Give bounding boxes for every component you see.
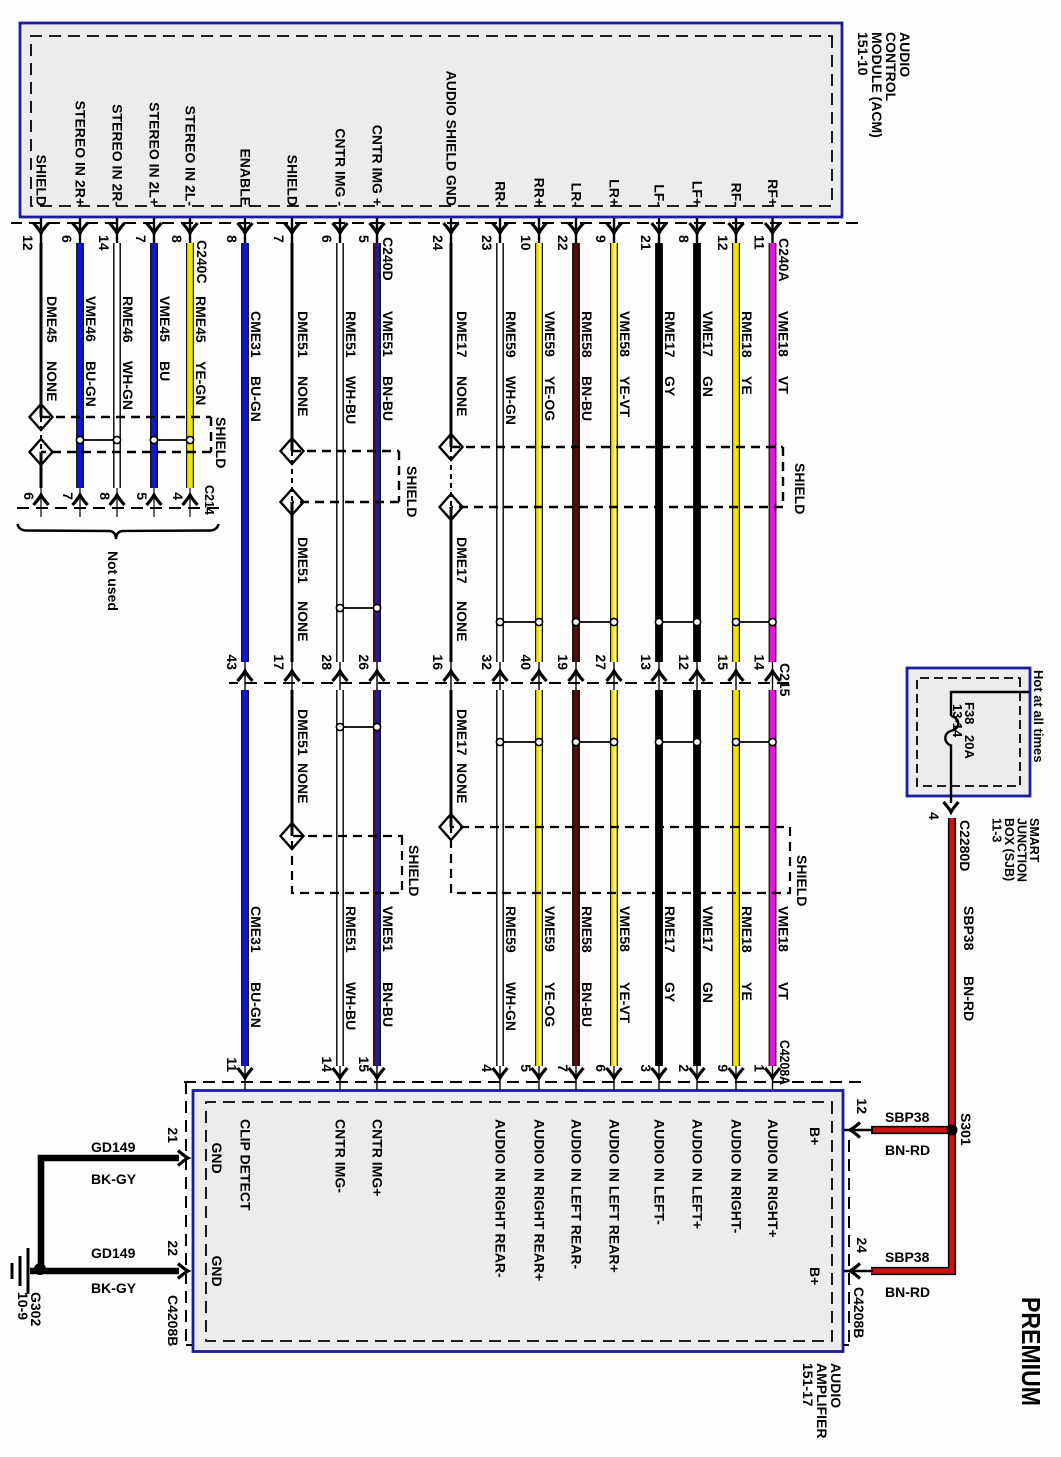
svg-text:B+: B+ (807, 1267, 823, 1285)
svg-text:C240D: C240D (380, 237, 396, 281)
svg-text:VME58: VME58 (617, 311, 633, 357)
svg-text:22: 22 (555, 235, 571, 251)
svg-text:LR+: LR+ (607, 179, 623, 206)
svg-text:1: 1 (752, 1064, 768, 1072)
svg-text:9: 9 (593, 235, 609, 243)
svg-text:SHIELD: SHIELD (34, 155, 50, 206)
svg-text:WH-BU: WH-BU (343, 376, 359, 424)
svg-text:8: 8 (224, 235, 240, 243)
svg-text:19: 19 (555, 654, 571, 670)
svg-text:RME58: RME58 (579, 906, 595, 953)
svg-text:RME46: RME46 (120, 296, 136, 343)
svg-text:BK-GY: BK-GY (91, 1171, 137, 1187)
svg-text:8: 8 (97, 492, 113, 500)
svg-text:C4208A: C4208A (777, 1040, 793, 1085)
svg-text:4: 4 (479, 1064, 495, 1072)
svg-text:STEREO IN 2L+: STEREO IN 2L+ (147, 102, 163, 206)
svg-text:YE-VT: YE-VT (617, 376, 633, 418)
svg-text:7: 7 (555, 1064, 571, 1072)
svg-text:B+: B+ (807, 1127, 823, 1145)
svg-text:STEREO IN 2L-: STEREO IN 2L- (183, 106, 199, 207)
svg-text:DME17: DME17 (454, 537, 470, 584)
svg-text:SBP38: SBP38 (961, 906, 977, 951)
svg-text:12: 12 (20, 235, 36, 251)
svg-text:RF-: RF- (729, 183, 745, 207)
svg-text:C214: C214 (202, 485, 216, 515)
svg-text:5: 5 (134, 492, 150, 500)
svg-text:RME51: RME51 (343, 906, 359, 953)
svg-text:NONE: NONE (454, 601, 470, 641)
svg-text:VME58: VME58 (617, 906, 633, 952)
svg-text:C240C: C240C (194, 240, 210, 284)
svg-text:AUDIO IN RIGHT-: AUDIO IN RIGHT- (729, 1119, 745, 1234)
svg-text:BU-GN: BU-GN (248, 982, 264, 1028)
svg-text:GND: GND (209, 1142, 225, 1173)
svg-text:26: 26 (356, 654, 372, 670)
svg-text:VME51: VME51 (380, 906, 396, 952)
svg-text:RME17: RME17 (662, 906, 678, 953)
svg-text:BK-GY: BK-GY (91, 1280, 137, 1296)
svg-text:28: 28 (319, 654, 335, 670)
svg-text:C4208B: C4208B (851, 1287, 867, 1338)
svg-text:27: 27 (593, 654, 609, 670)
svg-text:RME58: RME58 (579, 311, 595, 358)
svg-text:DME51: DME51 (295, 311, 311, 358)
svg-text:NONE: NONE (454, 763, 470, 803)
svg-text:WH-GN: WH-GN (503, 376, 519, 425)
svg-text:GY: GY (662, 982, 678, 1003)
svg-text:BN-BU: BN-BU (380, 982, 396, 1027)
svg-text:17: 17 (271, 654, 287, 670)
svg-text:PREMIUM: PREMIUM (1016, 1297, 1046, 1406)
svg-text:DME17: DME17 (454, 709, 470, 756)
svg-text:11: 11 (752, 235, 768, 250)
svg-text:NONE: NONE (295, 601, 311, 641)
svg-text:12: 12 (676, 654, 692, 670)
svg-text:22: 22 (165, 1240, 181, 1256)
svg-text:WH-GN: WH-GN (120, 361, 136, 410)
svg-text:Not used: Not used (105, 551, 121, 611)
svg-text:SHIELD: SHIELD (794, 855, 810, 906)
svg-text:SHIELD: SHIELD (792, 463, 808, 514)
svg-text:WH-BU: WH-BU (343, 982, 359, 1030)
svg-text:DME51: DME51 (295, 537, 311, 584)
svg-text:SBP38: SBP38 (885, 1249, 930, 1265)
svg-text:20A: 20A (962, 735, 977, 759)
svg-text:SHIELD: SHIELD (213, 417, 229, 468)
svg-text:RME51: RME51 (343, 311, 359, 358)
svg-text:8: 8 (169, 235, 185, 243)
svg-text:14: 14 (96, 235, 112, 251)
svg-text:CLIP DETECT: CLIP DETECT (238, 1119, 254, 1211)
svg-text:CNTR IMG +: CNTR IMG + (370, 125, 386, 206)
svg-text:21: 21 (165, 1127, 181, 1143)
svg-text:CME31: CME31 (248, 906, 264, 953)
svg-text:C4208B: C4208B (165, 1295, 181, 1346)
svg-text:VT: VT (776, 376, 792, 394)
svg-text:7: 7 (133, 235, 149, 243)
svg-text:16: 16 (430, 654, 446, 670)
svg-text:DME45: DME45 (44, 296, 60, 343)
svg-text:4: 4 (170, 492, 186, 500)
svg-text:21: 21 (638, 235, 654, 251)
svg-text:RME18: RME18 (739, 906, 755, 953)
svg-text:RF+: RF+ (765, 179, 781, 206)
svg-text:DME51: DME51 (295, 709, 311, 756)
svg-text:12: 12 (715, 235, 731, 251)
svg-text:AUDIO IN LEFT REAR-: AUDIO IN LEFT REAR- (569, 1119, 585, 1269)
svg-text:YE-VT: YE-VT (617, 982, 633, 1024)
svg-text:SHIELD: SHIELD (404, 466, 420, 517)
svg-text:RME17: RME17 (662, 311, 678, 358)
svg-text:VT: VT (776, 982, 792, 1000)
svg-text:YE: YE (739, 982, 755, 1001)
svg-text:GD149: GD149 (91, 1139, 136, 1155)
svg-text:Hot at all times: Hot at all times (1031, 670, 1046, 762)
svg-text:32: 32 (479, 654, 495, 670)
svg-text:3: 3 (638, 1064, 654, 1072)
svg-text:C240A: C240A (776, 238, 792, 282)
svg-text:CME31: CME31 (248, 311, 264, 358)
svg-text:AUDIO IN LEFT REAR+: AUDIO IN LEFT REAR+ (607, 1119, 623, 1273)
svg-text:YE: YE (739, 376, 755, 395)
svg-text:BU-GN: BU-GN (248, 376, 264, 422)
svg-text:151-10: 151-10 (855, 32, 871, 76)
svg-text:GND: GND (209, 1255, 225, 1286)
svg-text:RME18: RME18 (739, 311, 755, 358)
svg-text:4: 4 (926, 812, 942, 820)
svg-text:BU-GN: BU-GN (83, 361, 99, 407)
svg-text:STEREO IN 2R+: STEREO IN 2R+ (73, 101, 89, 206)
svg-text:7: 7 (271, 235, 287, 243)
svg-text:YE-OG: YE-OG (542, 376, 558, 421)
svg-text:BN-BU: BN-BU (579, 982, 595, 1027)
svg-text:RR-: RR- (493, 181, 509, 206)
svg-text:11: 11 (224, 1057, 240, 1072)
svg-text:LF+: LF+ (690, 181, 706, 206)
svg-text:BN-BU: BN-BU (579, 376, 595, 421)
svg-text:VME18: VME18 (776, 906, 792, 952)
svg-text:VME46: VME46 (83, 296, 99, 342)
svg-text:RME45: RME45 (193, 296, 209, 343)
svg-text:6: 6 (319, 235, 335, 243)
svg-text:15: 15 (715, 654, 731, 670)
svg-text:YE-OG: YE-OG (542, 982, 558, 1027)
svg-text:BN-BU: BN-BU (380, 376, 396, 421)
svg-text:CNTR IMG-: CNTR IMG- (333, 1119, 349, 1193)
svg-text:NONE: NONE (44, 361, 60, 401)
svg-text:AUDIO SHIELD GND: AUDIO SHIELD GND (444, 71, 460, 206)
svg-text:BU: BU (157, 361, 173, 381)
svg-text:VME45: VME45 (157, 296, 173, 342)
svg-text:2: 2 (676, 1064, 692, 1072)
svg-text:GN: GN (700, 982, 716, 1003)
svg-text:NONE: NONE (295, 763, 311, 803)
svg-text:6: 6 (21, 492, 37, 500)
svg-text:10-9: 10-9 (15, 1292, 31, 1320)
svg-text:CNTR IMG -: CNTR IMG - (333, 128, 349, 206)
svg-text:13: 13 (638, 654, 654, 670)
svg-text:AUDIO IN RIGHT+: AUDIO IN RIGHT+ (765, 1119, 781, 1238)
svg-text:AUDIO IN LEFT-: AUDIO IN LEFT- (652, 1119, 668, 1225)
svg-text:VME18: VME18 (776, 311, 792, 357)
svg-text:151-17: 151-17 (800, 1363, 816, 1407)
svg-text:RME59: RME59 (503, 311, 519, 358)
svg-text:YE-GN: YE-GN (193, 361, 209, 405)
svg-text:14: 14 (752, 654, 768, 670)
svg-text:CNTR IMG+: CNTR IMG+ (370, 1119, 386, 1196)
svg-text:STEREO IN 2R-: STEREO IN 2R- (110, 104, 126, 206)
svg-text:BN-RD: BN-RD (961, 976, 977, 1021)
svg-text:VME17: VME17 (700, 906, 716, 952)
svg-text:RME59: RME59 (503, 906, 519, 953)
svg-text:SHIELD: SHIELD (285, 155, 301, 206)
svg-text:S301: S301 (958, 1113, 974, 1146)
svg-text:9: 9 (715, 1064, 731, 1072)
svg-text:8: 8 (676, 235, 692, 243)
svg-text:VME17: VME17 (700, 311, 716, 357)
svg-text:5: 5 (518, 1064, 534, 1072)
svg-text:AUDIO IN RIGHT REAR+: AUDIO IN RIGHT REAR+ (532, 1119, 548, 1281)
svg-text:12: 12 (854, 1098, 870, 1114)
svg-text:VME59: VME59 (542, 906, 558, 952)
svg-text:11-3: 11-3 (990, 818, 1004, 842)
svg-text:23: 23 (479, 235, 495, 251)
svg-text:15: 15 (356, 1056, 372, 1072)
svg-text:GD149: GD149 (91, 1245, 136, 1261)
svg-text:C2280D: C2280D (957, 820, 973, 871)
svg-text:14: 14 (319, 1056, 335, 1072)
svg-text:24: 24 (854, 1237, 870, 1253)
svg-text:SHIELD: SHIELD (406, 845, 422, 896)
svg-text:DME17: DME17 (454, 311, 470, 358)
svg-text:WH-GN: WH-GN (503, 982, 519, 1031)
svg-text:6: 6 (593, 1064, 609, 1072)
svg-text:LR-: LR- (569, 183, 585, 207)
svg-text:ENABLE: ENABLE (238, 148, 254, 206)
svg-text:5: 5 (356, 235, 372, 243)
svg-text:BN-RD: BN-RD (885, 1284, 930, 1300)
svg-text:GN: GN (700, 376, 716, 397)
svg-text:VME51: VME51 (380, 311, 396, 357)
svg-text:GY: GY (662, 376, 678, 397)
svg-text:VME59: VME59 (542, 311, 558, 357)
svg-text:NONE: NONE (295, 376, 311, 416)
svg-text:LF-: LF- (652, 184, 668, 206)
svg-text:7: 7 (60, 492, 76, 500)
svg-text:BN-RD: BN-RD (885, 1142, 930, 1158)
svg-text:24: 24 (430, 235, 446, 251)
svg-text:C215: C215 (777, 663, 793, 697)
svg-text:43: 43 (224, 654, 240, 670)
svg-text:6: 6 (59, 235, 75, 243)
svg-text:40: 40 (518, 654, 534, 670)
svg-text:10: 10 (518, 235, 534, 251)
svg-text:AUDIO IN RIGHT REAR-: AUDIO IN RIGHT REAR- (493, 1119, 509, 1278)
svg-text:AUDIO IN LEFT+: AUDIO IN LEFT+ (690, 1119, 706, 1229)
svg-text:SBP38: SBP38 (885, 1109, 930, 1125)
svg-text:NONE: NONE (454, 376, 470, 416)
svg-text:RR+: RR+ (532, 178, 548, 206)
